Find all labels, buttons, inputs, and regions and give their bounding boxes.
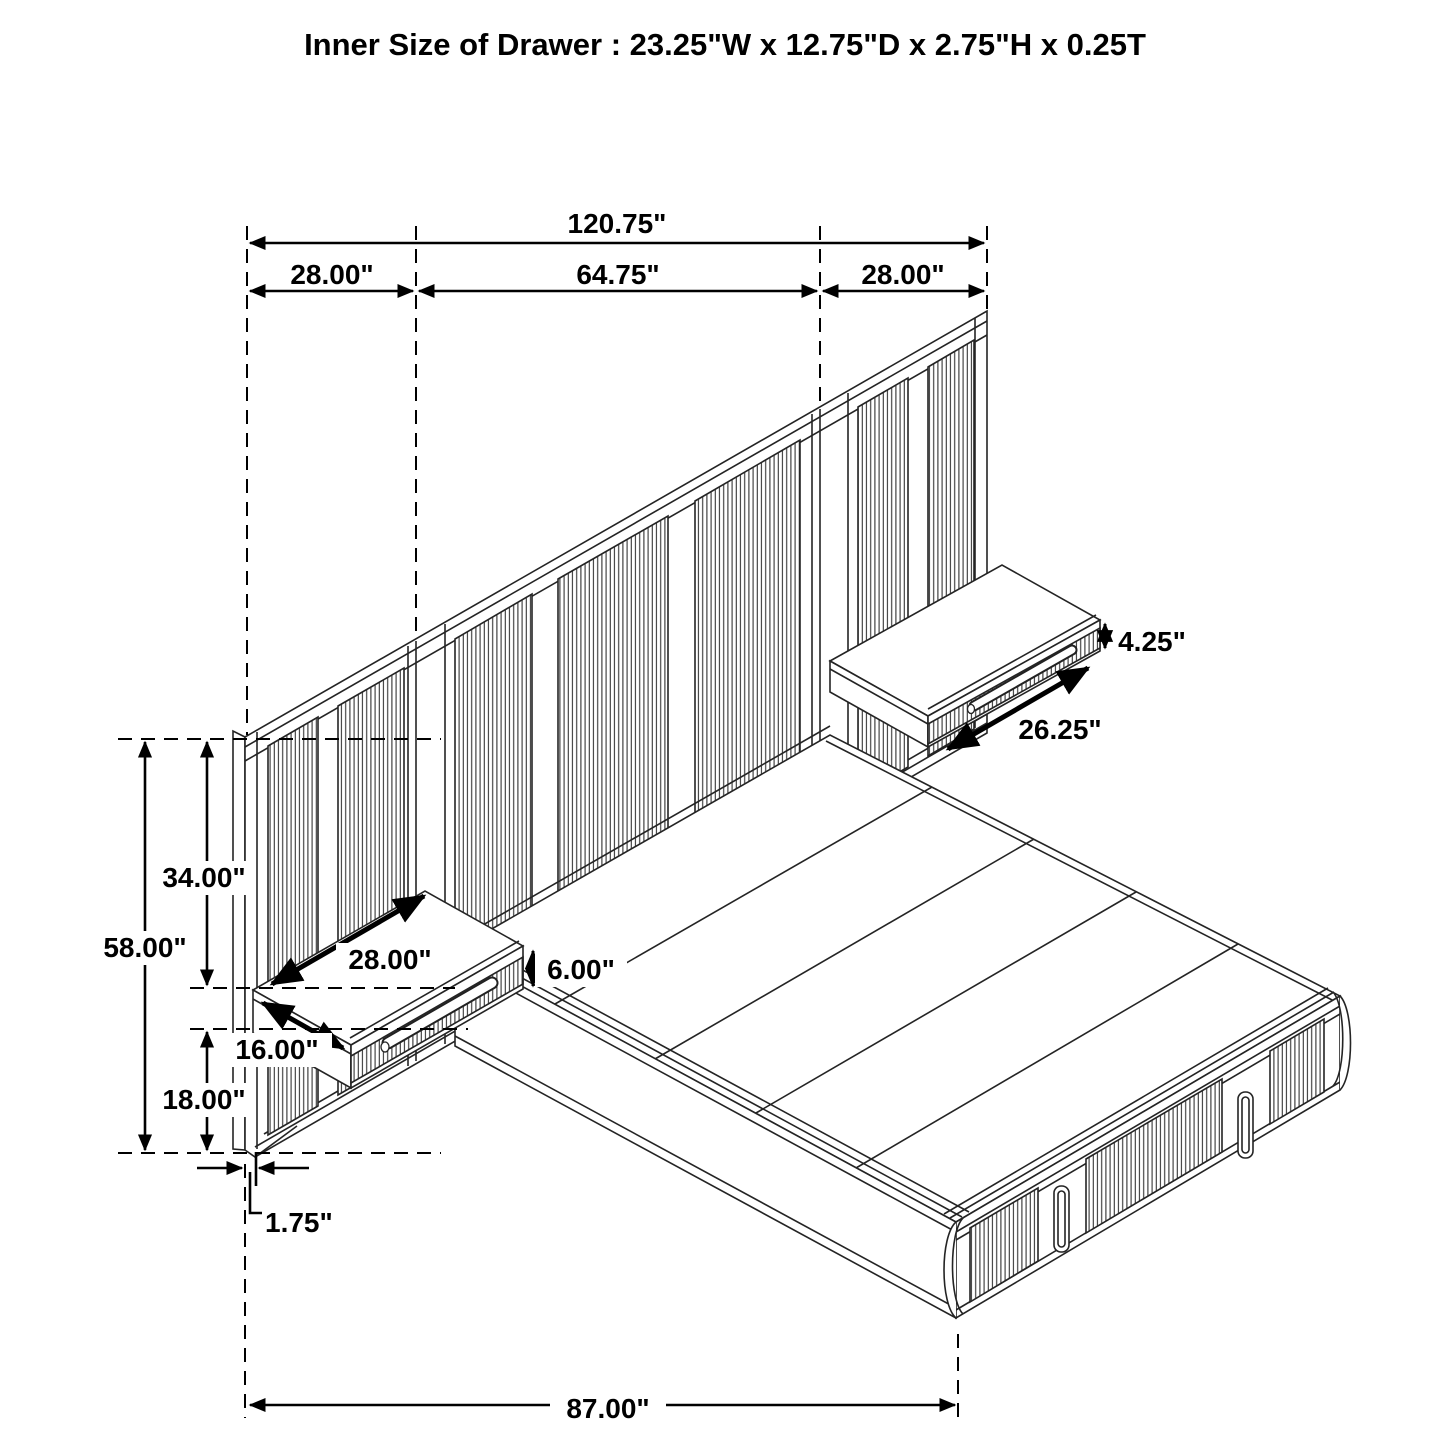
dim-label-rns-width: 26.25": [1018, 714, 1101, 745]
diagram-title: Inner Size of Drawer : 23.25"W x 12.75"D…: [304, 27, 1146, 62]
dim-label-rns-height: 4.25": [1118, 626, 1186, 657]
dim-label-left-wing: 28.00": [290, 259, 373, 290]
headboard-slat-panel: [858, 378, 908, 796]
dim-label-lower-height: 18.00": [162, 1084, 245, 1115]
footboard-handle: [1242, 1097, 1249, 1153]
dim-label-thickness: 1.75": [265, 1207, 333, 1238]
dim-label-nightstand-depth: 16.00": [235, 1034, 318, 1065]
dim-label-nightstand-height: 6.00": [547, 954, 615, 985]
left-drawer-handle-end: [381, 1042, 389, 1052]
footboard-handle: [1058, 1191, 1065, 1247]
dim-label-bed-length: 87.00": [566, 1393, 649, 1424]
headboard-slat-panel: [268, 717, 318, 1135]
right-drawer-handle-end: [968, 705, 975, 714]
dim-label-right-wing: 28.00": [861, 259, 944, 290]
dim-label-nightstand-width: 28.00": [348, 944, 431, 975]
dim-label-upper-height: 34.00": [162, 862, 245, 893]
dim-label-center: 64.75": [576, 259, 659, 290]
dim-label-overall-width: 120.75": [568, 208, 667, 239]
bed-dimension-diagram: 120.75" 28.00" 64.75" 28.00" 58.00" 34.0…: [0, 0, 1445, 1445]
bed-dimension-diagram-page: 120.75" 28.00" 64.75" 28.00" 58.00" 34.0…: [0, 0, 1445, 1445]
dim-label-headboard-height: 58.00": [103, 932, 186, 963]
